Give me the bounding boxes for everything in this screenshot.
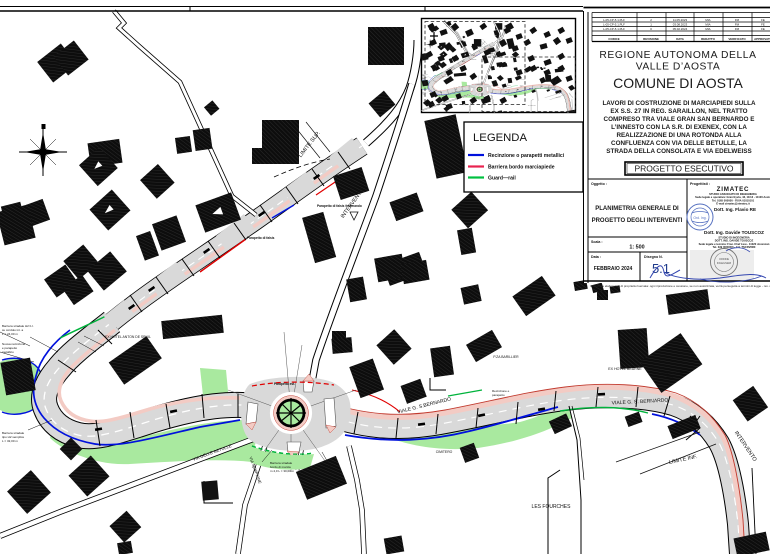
svg-text:EX S.S. 27 IN REG. SARAILLON,: EX S.S. 27 IN REG. SARAILLON, NEL TRATTO [610, 108, 747, 115]
svg-text:PLANIMETRIA GENERALE DI: PLANIMETRIA GENERALE DI [595, 206, 679, 212]
svg-text:Barriera bordo marciapiede: Barriera bordo marciapiede [488, 165, 555, 171]
svg-text:INGEGNERI: INGEGNERI [717, 261, 732, 265]
svg-text:MIA: MIA [705, 18, 710, 22]
svg-text:FM: FM [735, 18, 740, 22]
svg-text:COMUNE DI AOSTA: COMUNE DI AOSTA [613, 75, 743, 91]
svg-text:COMPRESO TRA VIALE GRAN SAN BE: COMPRESO TRA VIALE GRAN SAN BERNARDO E [604, 116, 755, 123]
svg-text:L-05-CP-5.1.PLF: L-05-CP-5.1.PLF [603, 27, 625, 31]
svg-text:Data :: Data : [591, 255, 601, 259]
svg-text:REGIONE AUTONOMA DELLA: REGIONE AUTONOMA DELLA [599, 50, 756, 61]
svg-text:FE: FE [761, 18, 765, 22]
svg-text:Scala :: Scala : [591, 240, 603, 244]
svg-text:FE: FE [761, 27, 765, 31]
svg-text:LAVORI DI COSTRUZIONE DI MARCI: LAVORI DI COSTRUZIONE DI MARCIAPIEDI SUL… [602, 100, 756, 107]
svg-text:REDATTO: REDATTO [701, 37, 715, 41]
svg-text:REVISIONE: REVISIONE [643, 37, 659, 41]
svg-text:STRADA DELLA CONSOLATA E VIA E: STRADA DELLA CONSOLATA E VIA EDELWEISS [606, 148, 751, 155]
svg-text:L’INNESTO CON LA S.R. DI EXENE: L’INNESTO CON LA S.R. DI EXENEX, CON LA [611, 124, 747, 131]
svg-text:L-05-CP-5.1.PLF: L-05-CP-5.1.PLF [603, 18, 625, 22]
svg-text:Guard—rail: Guard—rail [488, 176, 516, 182]
svg-text:1: 500: 1: 500 [629, 245, 644, 251]
svg-text:Il presente elaborato è di pro: Il presente elaborato è di proprietà ris… [590, 284, 770, 288]
svg-text:DATA: DATA [676, 37, 685, 41]
svg-text:Recinzione o parapetti meta: Recinzione o parapetti metallici [488, 153, 565, 159]
svg-text:ZIMATEC: ZIMATEC [717, 186, 750, 193]
svg-text:03.08.2023: 03.08.2023 [673, 23, 688, 27]
svg-text:REALIZZAZIONE DI UNA ROTONDA A: REALIZZAZIONE DI UNA ROTONDA ALLA [616, 132, 742, 139]
svg-text:VALLE D’AOSTA: VALLE D’AOSTA [636, 62, 721, 73]
svg-text:FM: FM [735, 27, 740, 31]
svg-text:E-mail zimatec@zimatec.it: E-mail zimatec@zimatec.it [716, 202, 750, 206]
svg-text:MIA: MIA [705, 27, 710, 31]
svg-text:FM: FM [735, 23, 740, 27]
svg-text:Dott. Ing. Davide TOUSCOZ: Dott. Ing. Davide TOUSCOZ [704, 230, 764, 235]
svg-text:CODICE: CODICE [608, 37, 619, 41]
svg-text:Tel. 339 0000000 - C.F. TSCD: Tel. 339 0000000 - C.F. TSCDVD80 [713, 245, 756, 249]
svg-text:FEBBRAIO 2024: FEBBRAIO 2024 [594, 266, 633, 272]
svg-text:Disegno N.: Disegno N. [644, 255, 663, 259]
svg-text:Ord. Ing.: Ord. Ing. [693, 216, 706, 220]
svg-text:L-05-CP-5.1.PLF: L-05-CP-5.1.PLF [603, 23, 625, 27]
svg-text:VERIFICATO: VERIFICATO [728, 37, 746, 41]
svg-text:05.02.2024: 05.02.2024 [673, 27, 688, 31]
svg-text:Dott. Ing. Flavio RE: Dott. Ing. Flavio RE [714, 207, 756, 212]
svg-text:Oggetto :: Oggetto : [591, 182, 607, 186]
svg-text:LEGENDA: LEGENDA [473, 132, 527, 144]
svg-text:PROGETTO ESECUTIVO: PROGETTO ESECUTIVO [634, 164, 733, 174]
svg-text:PROGETTO DEGLI INTERVENTI: PROGETTO DEGLI INTERVENTI [592, 218, 683, 224]
svg-text:FE: FE [761, 23, 765, 27]
svg-text:ORDINE: ORDINE [719, 257, 729, 261]
svg-text:Progettisti :: Progettisti : [690, 182, 710, 186]
svg-text:APPROVATO: APPROVATO [754, 37, 770, 41]
svg-text:11.05.2023: 11.05.2023 [673, 18, 688, 22]
svg-text:CONFLUENZA CON VIA DELLE BETUL: CONFLUENZA CON VIA DELLE BETULLE, LA [611, 140, 747, 147]
svg-text:MIA: MIA [705, 23, 710, 27]
